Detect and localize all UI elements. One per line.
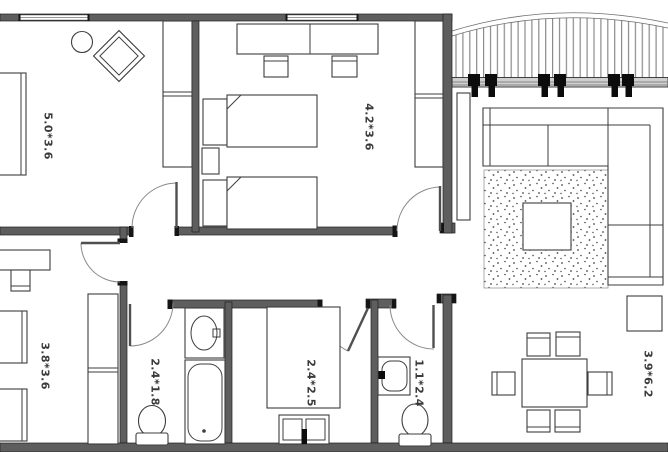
balcony <box>452 13 668 97</box>
tv-cabinet <box>457 93 470 220</box>
bed <box>0 389 27 441</box>
side-table <box>627 296 662 331</box>
balcony-balusters <box>452 18 668 79</box>
dining-chair <box>492 372 515 395</box>
door-bedroom-1 <box>132 182 177 228</box>
desk-chair <box>332 56 357 77</box>
toilet <box>136 406 168 446</box>
desk-chair <box>11 270 30 291</box>
coffee-table <box>523 203 571 250</box>
wardrobe <box>88 294 118 444</box>
single-bed <box>203 177 317 229</box>
single-bed <box>203 95 317 147</box>
bed <box>0 73 26 175</box>
bedroom-3-furniture <box>0 250 118 444</box>
dining-chair <box>555 410 580 432</box>
bedroom-1-furniture <box>0 21 192 175</box>
bed <box>0 311 27 363</box>
armchair <box>94 31 145 82</box>
bathtub <box>185 360 225 444</box>
desk-chair <box>264 56 288 77</box>
room-dimension-label: 2.4*2.5 <box>305 359 318 407</box>
door-bedroom-2 <box>397 186 440 231</box>
dining-chair <box>588 372 612 395</box>
wall-end-caps <box>19 14 457 309</box>
room-dimension-label: 3.8*3.6 <box>39 342 52 390</box>
dresser <box>279 415 329 444</box>
round-side-table <box>72 32 93 53</box>
dining-chair <box>527 333 550 356</box>
dining-set <box>492 332 612 432</box>
window-top-left <box>20 15 88 20</box>
door-wc <box>390 305 434 349</box>
room-dimension-label: 4.2*3.6 <box>363 103 376 151</box>
floor-plan-svg: 5.0*3.6 4.2*3.6 3.8*3.6 2.4*1.8 2.4*2.5 … <box>0 0 668 452</box>
room-dimension-label: 1.1*2.4 <box>413 359 426 407</box>
toilet <box>399 404 431 446</box>
wardrobe <box>163 21 192 167</box>
nightstand <box>202 148 219 174</box>
window-top-middle <box>287 15 358 20</box>
bedroom-4-furniture <box>267 307 340 444</box>
room-dimension-label: 2.4*1.8 <box>149 358 162 406</box>
living-room-furniture <box>457 93 663 432</box>
wardrobe <box>415 21 443 167</box>
bedroom-2-furniture <box>202 21 443 229</box>
desk <box>0 250 50 270</box>
room-dimension-label: 3.9*6.2 <box>642 350 655 398</box>
floor-plan: 5.0*3.6 4.2*3.6 3.8*3.6 2.4*1.8 2.4*2.5 … <box>0 0 668 452</box>
room-dimension-label: 5.0*3.6 <box>42 112 55 160</box>
door-bedroom-3 <box>81 243 120 282</box>
desk <box>237 24 378 54</box>
dining-chair <box>527 410 550 432</box>
sink <box>378 357 410 395</box>
bed <box>267 307 340 408</box>
sink <box>185 308 224 358</box>
dining-chair <box>556 332 580 356</box>
door-bathroom <box>130 303 173 346</box>
dining-table <box>522 359 587 407</box>
